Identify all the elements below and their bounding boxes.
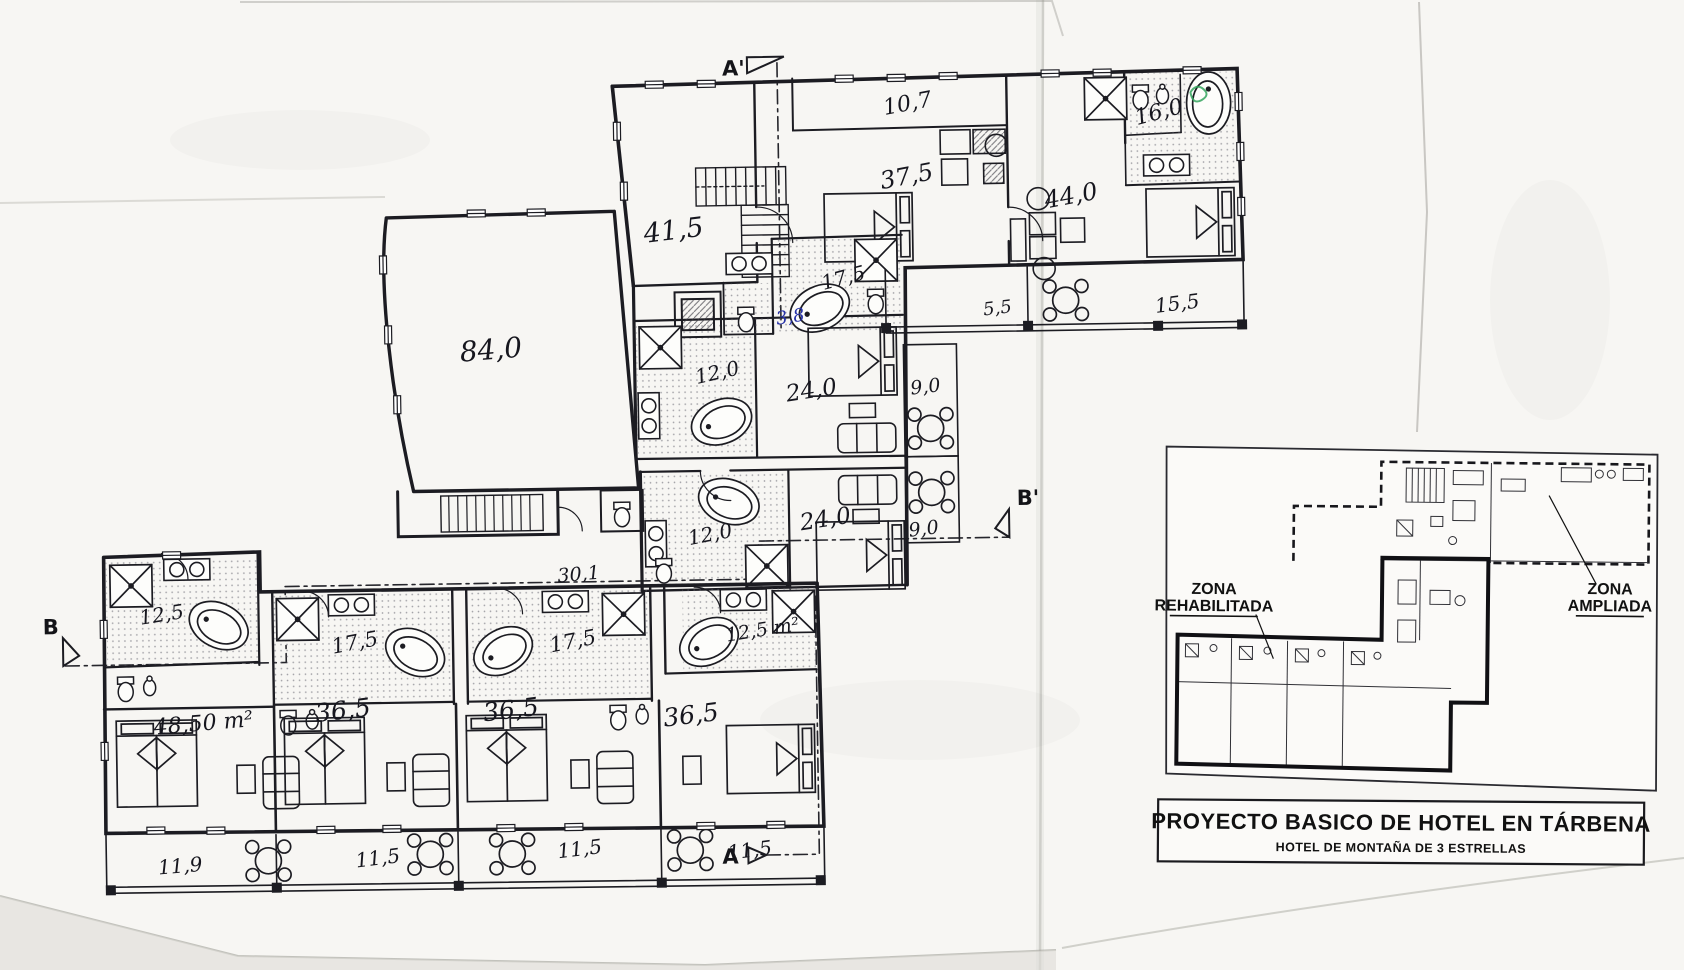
zona-rehabilitada-label-1: ZONA [1191,581,1237,598]
terrace-label-11-9: 11,9 [157,852,204,880]
double-sink [328,594,374,616]
area-label-9-0u: 9,0 [909,374,942,399]
toilet [656,558,672,583]
double-sink [726,253,772,275]
title-line1: PROYECTO BASICO DE HOTEL EN TÁRBENA [1151,808,1651,836]
shower [746,545,789,588]
toilet [867,289,883,314]
section-a-prime: A' [722,56,745,80]
title-line2: HOTEL DE MONTAÑA DE 3 ESTRELLAS [1276,839,1526,856]
shower [276,598,319,641]
shower [639,326,682,369]
double-sink [720,589,766,611]
double-sink [1143,154,1189,176]
zona-ampliada-label-2: AMPLIADA [1568,598,1653,616]
shower [602,593,645,636]
toilet [738,307,754,332]
section-a: A [722,844,739,868]
area-label-9-0l: 9,0 [907,516,940,541]
key-plan-inset: ZONA REHABILITADA ZONA AMPLIADA [1153,446,1660,790]
inset-frame [1163,447,1660,791]
floor-plan-canvas: 41,5 10,7 37,5 [0,0,1684,970]
area-label-5-5: 5,5 [982,296,1013,320]
zona-ampliada-label-1: ZONA [1587,581,1633,598]
section-b-prime: B' [1017,486,1040,510]
title-block: PROYECTO BASICO DE HOTEL EN TÁRBENA HOTE… [1151,799,1651,864]
area-label-3-8: 3,8 [775,305,807,330]
toilet [610,705,626,730]
area-label-84-0: 84,0 [458,331,523,369]
bathtub [1186,72,1231,135]
shower [110,565,153,608]
zona-rehabilitada-label-2: REHABILITADA [1154,597,1273,615]
shower [1084,77,1127,120]
section-b: B [43,615,59,639]
double-sink [164,559,210,581]
area-label-30-1: 30,1 [557,562,601,588]
double-sink [638,393,660,439]
toilet [117,677,133,702]
double-sink [542,591,588,613]
scanned-plan-page: 41,5 10,7 37,5 [0,0,1684,970]
